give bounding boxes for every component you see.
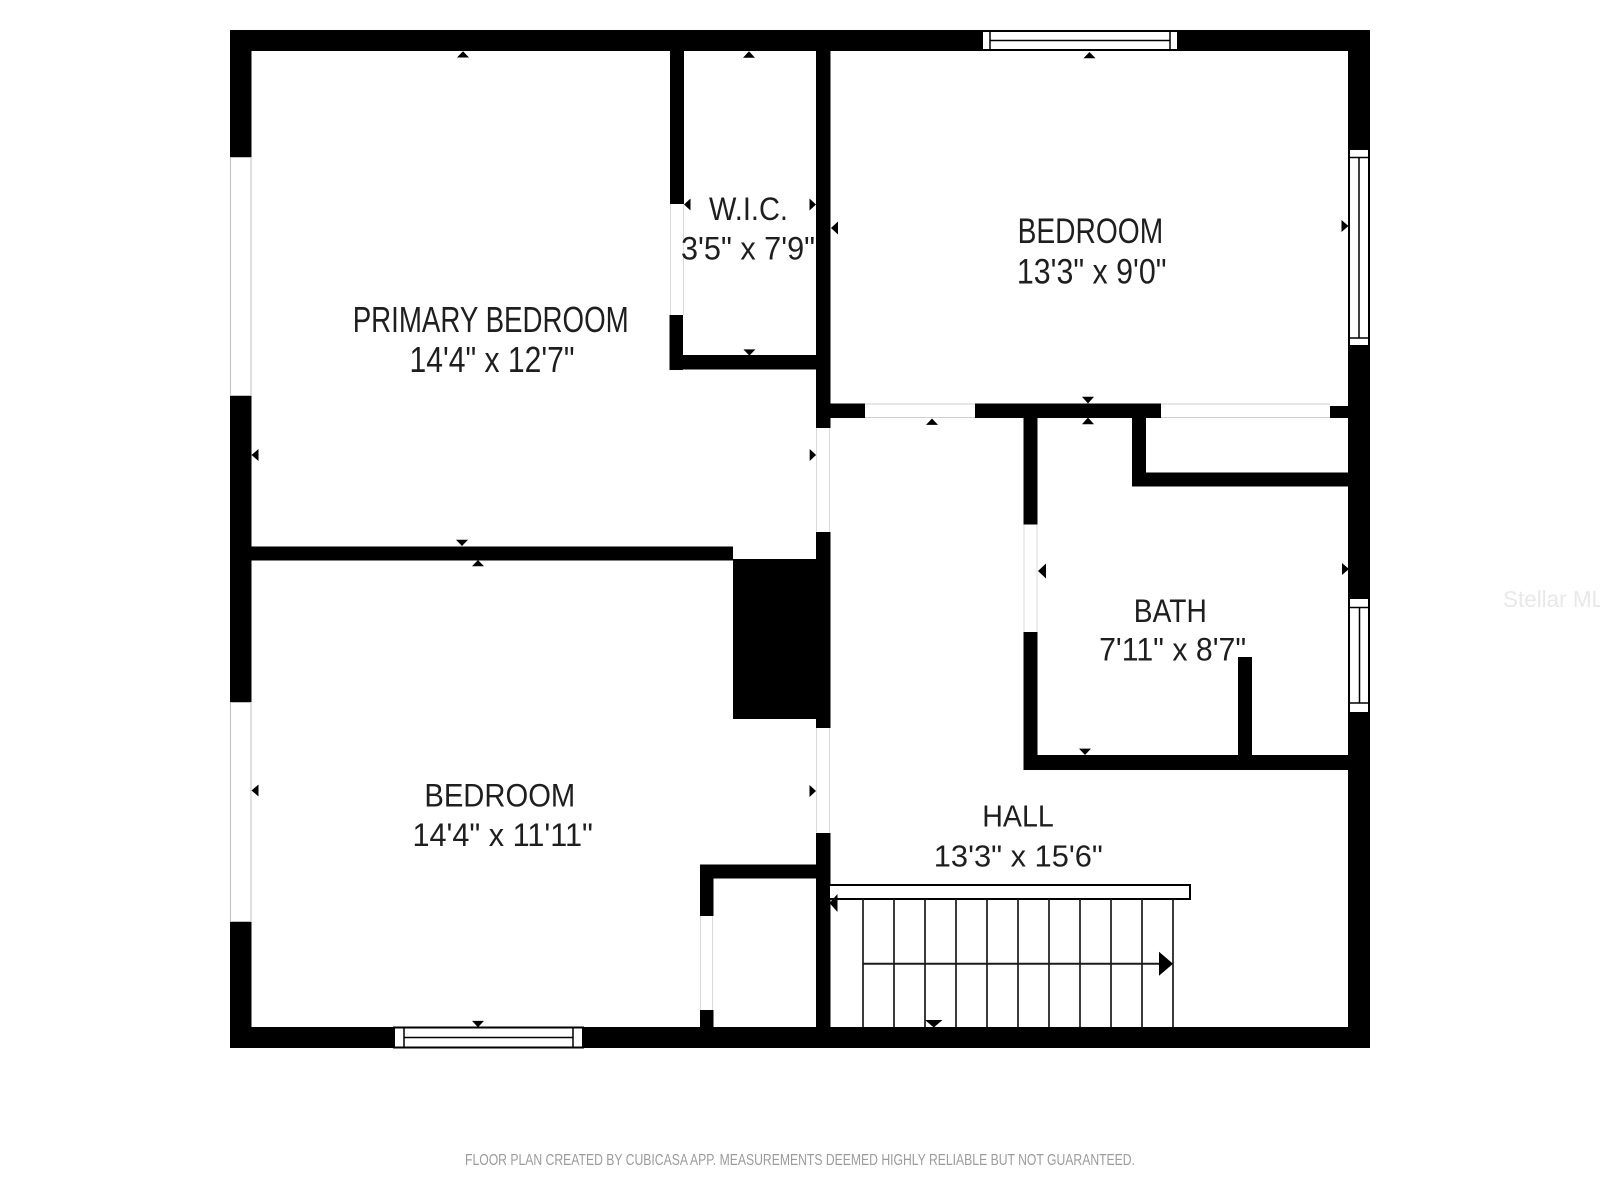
svg-text:BEDROOM: BEDROOM xyxy=(1018,212,1164,251)
svg-text:BEDROOM: BEDROOM xyxy=(424,778,575,814)
svg-text:PRIMARY BEDROOM: PRIMARY BEDROOM xyxy=(353,299,629,340)
svg-text:FLOOR PLAN CREATED BY CUBICASA: FLOOR PLAN CREATED BY CUBICASA APP. MEAS… xyxy=(465,1152,1135,1169)
svg-text:7'11" x 8'7": 7'11" x 8'7" xyxy=(1099,632,1246,668)
svg-text:Stellar MLS: Stellar MLS xyxy=(1503,586,1600,612)
svg-text:14'4" x 11'11": 14'4" x 11'11" xyxy=(413,817,593,853)
svg-text:BATH: BATH xyxy=(1134,593,1207,629)
svg-text:3'5" x 7'9": 3'5" x 7'9" xyxy=(681,231,815,267)
svg-text:14'4" x 12'7": 14'4" x 12'7" xyxy=(410,339,575,380)
svg-text:HALL: HALL xyxy=(982,798,1054,833)
svg-text:W.I.C.: W.I.C. xyxy=(709,191,788,227)
svg-text:13'3" x 9'0": 13'3" x 9'0" xyxy=(1017,253,1167,292)
svg-text:13'3" x 15'6": 13'3" x 15'6" xyxy=(934,839,1103,874)
